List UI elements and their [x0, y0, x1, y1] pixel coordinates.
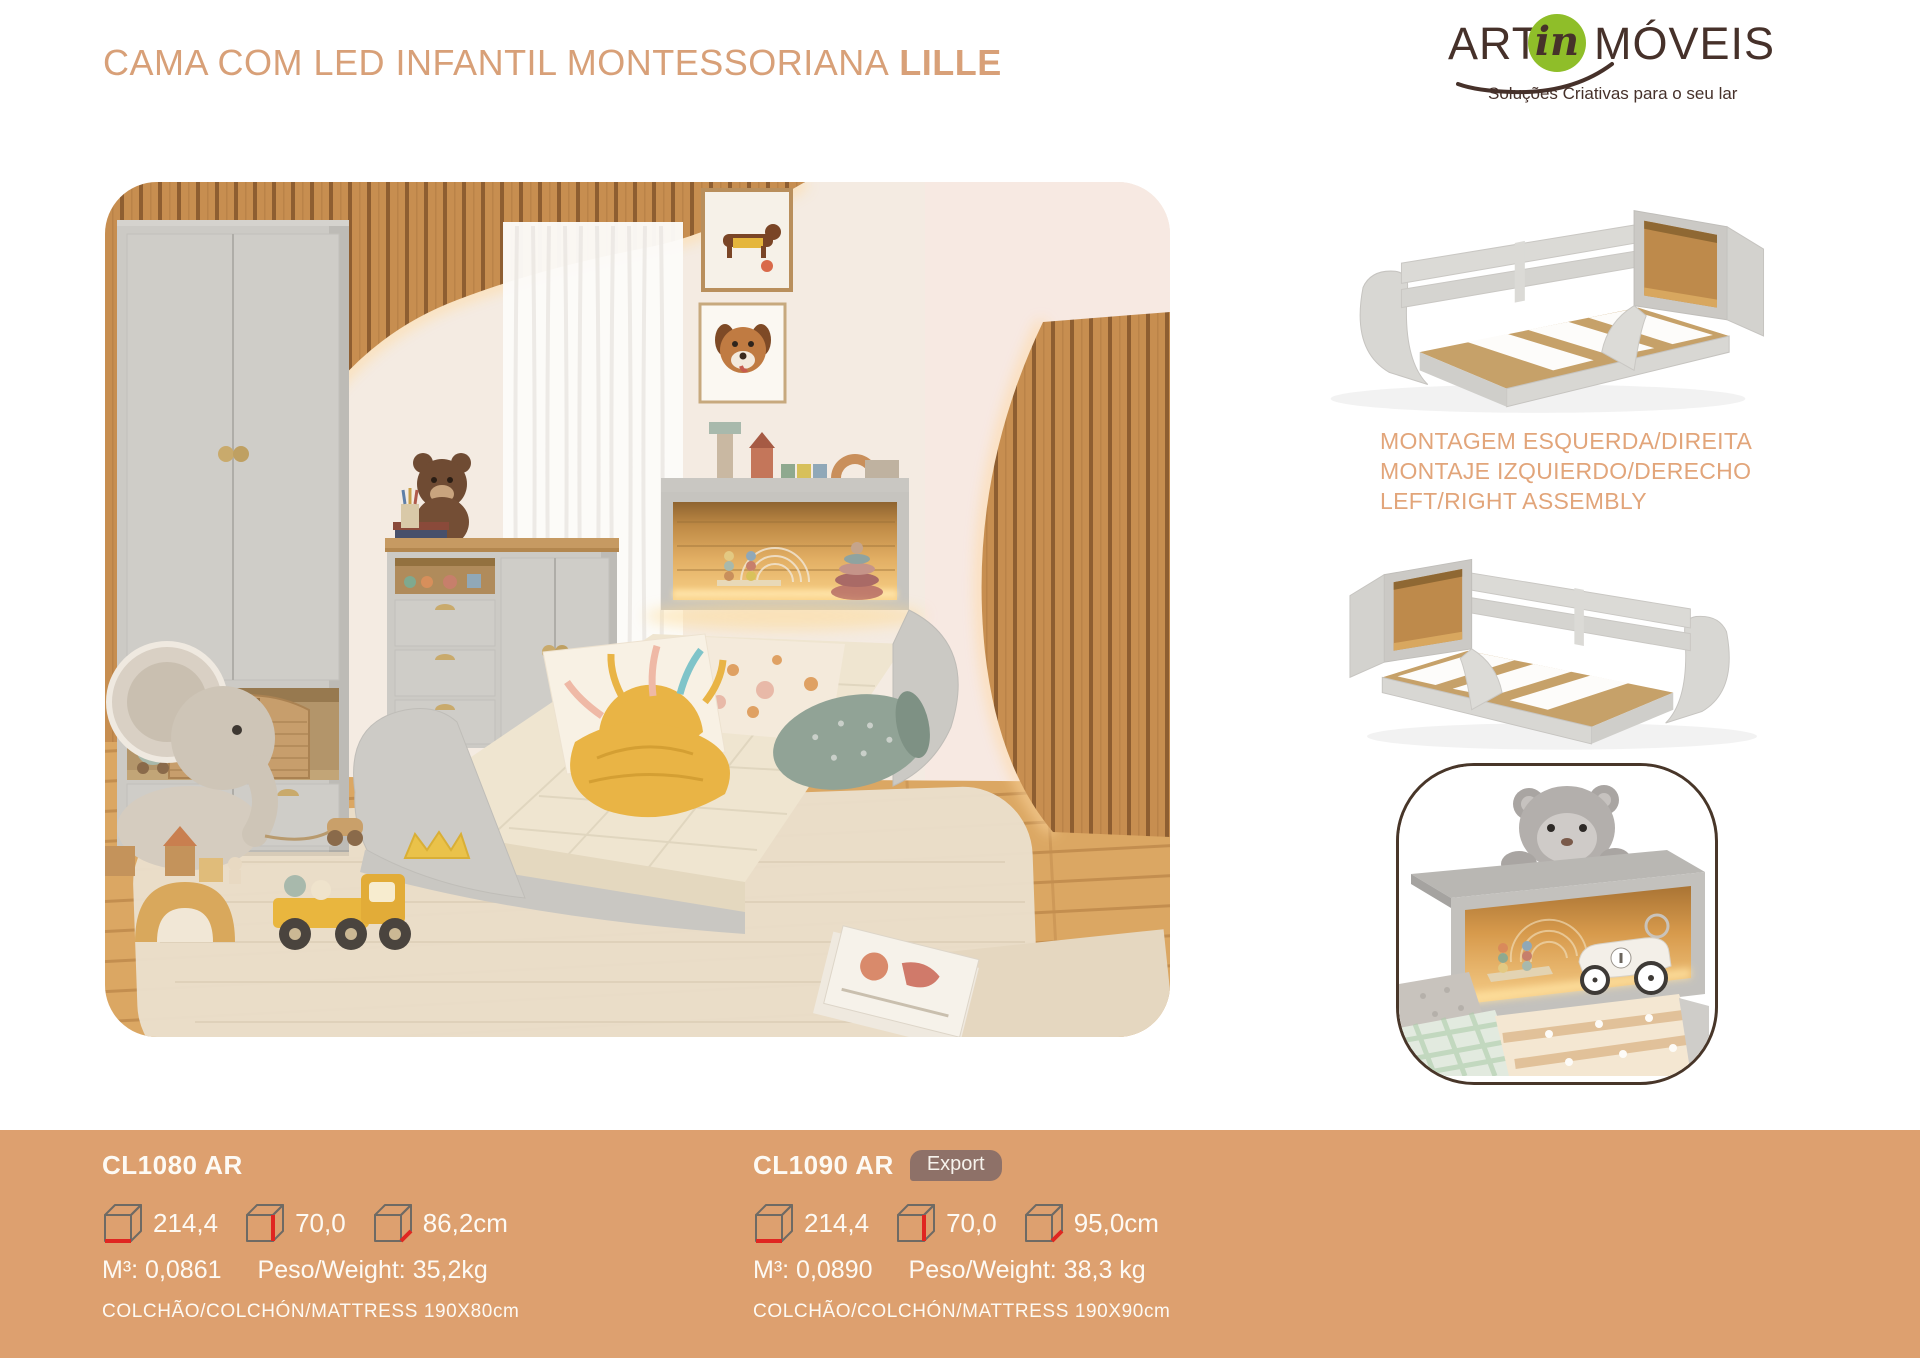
dimension-width: 214,4: [102, 1200, 218, 1246]
poster-dachshund: [703, 190, 791, 290]
dimension-height: 70,0: [244, 1200, 346, 1246]
headboard-detail-photo: [1396, 763, 1718, 1085]
dimension-cube-width-icon: [753, 1200, 795, 1246]
catalog-page: CAMA COM LED INFANTIL MONTESSORIANALILLE…: [0, 0, 1920, 1358]
dimension-height: 70,0: [895, 1200, 997, 1246]
brand-name-in: in: [1535, 18, 1579, 65]
dimension-height-value: 70,0: [295, 1208, 346, 1239]
product-cl1080: CL1080 AR 214,4: [102, 1148, 534, 1323]
export-badge: Export: [910, 1150, 1002, 1181]
assembly-note: MONTAGEM ESQUERDA/DIREITA MONTAJE IZQUIE…: [1380, 426, 1752, 516]
dimension-cube-height-icon: [895, 1200, 937, 1246]
volume-label: M³: 0,0861: [102, 1256, 222, 1285]
weight-label: Peso/Weight: 38,3 kg: [909, 1256, 1146, 1285]
bedroom-photo: [105, 182, 1170, 1037]
page-title: CAMA COM LED INFANTIL MONTESSORIANALILLE: [103, 42, 1002, 84]
product-code: CL1080 AR: [102, 1150, 243, 1181]
dimension-depth: 95,0cm: [1023, 1200, 1159, 1246]
spec-bar: CL1080 AR 214,4: [0, 1130, 1920, 1358]
product-code: CL1090 AR: [753, 1150, 894, 1181]
brand-name-moveis: MÓVEIS: [1594, 18, 1775, 70]
dimension-width-value: 214,4: [153, 1208, 218, 1239]
logo-green-circle-icon: in: [1528, 14, 1586, 72]
dimension-width-value: 214,4: [804, 1208, 869, 1239]
dimension-cube-width-icon: [102, 1200, 144, 1246]
bed-render-right-assembly: [1298, 158, 1778, 426]
poster-puppy: [700, 304, 785, 402]
brand-logo: ART in MÓVEIS Soluções Criativas para o …: [1448, 16, 1778, 108]
dimension-height-value: 70,0: [946, 1208, 997, 1239]
assembly-note-pt: MONTAGEM ESQUERDA/DIREITA: [1380, 426, 1752, 456]
dimension-cube-height-icon: [244, 1200, 286, 1246]
dimension-depth-value: 95,0cm: [1074, 1208, 1159, 1239]
dimensions-row: 214,4 70,0: [753, 1200, 1185, 1246]
dimension-depth-value: 86,2cm: [423, 1208, 508, 1239]
dimension-depth: 86,2cm: [372, 1200, 508, 1246]
bed-render-left-assembly: [1322, 510, 1802, 762]
mattress-label: COLCHÃO/COLCHÓN/MATTRESS 190X80cm: [102, 1301, 534, 1323]
dimension-cube-depth-icon: [1023, 1200, 1065, 1246]
dimensions-row: 214,4 70,0: [102, 1200, 534, 1246]
assembly-note-es: MONTAJE IZQUIERDO/DERECHO: [1380, 456, 1752, 486]
dimension-width: 214,4: [753, 1200, 869, 1246]
dimension-cube-depth-icon: [372, 1200, 414, 1246]
page-title-model: LILLE: [899, 42, 1001, 83]
product-cl1090: CL1090 AR Export 214,4: [753, 1148, 1185, 1323]
bedroom-photo-illustration: [105, 182, 1170, 1037]
mattress-label: COLCHÃO/COLCHÓN/MATTRESS 190X90cm: [753, 1301, 1185, 1323]
weight-label: Peso/Weight: 35,2kg: [258, 1256, 488, 1285]
volume-label: M³: 0,0890: [753, 1256, 873, 1285]
page-title-main: CAMA COM LED INFANTIL MONTESSORIANA: [103, 42, 889, 83]
brand-tagline: Soluções Criativas para o seu lar: [1488, 84, 1737, 104]
